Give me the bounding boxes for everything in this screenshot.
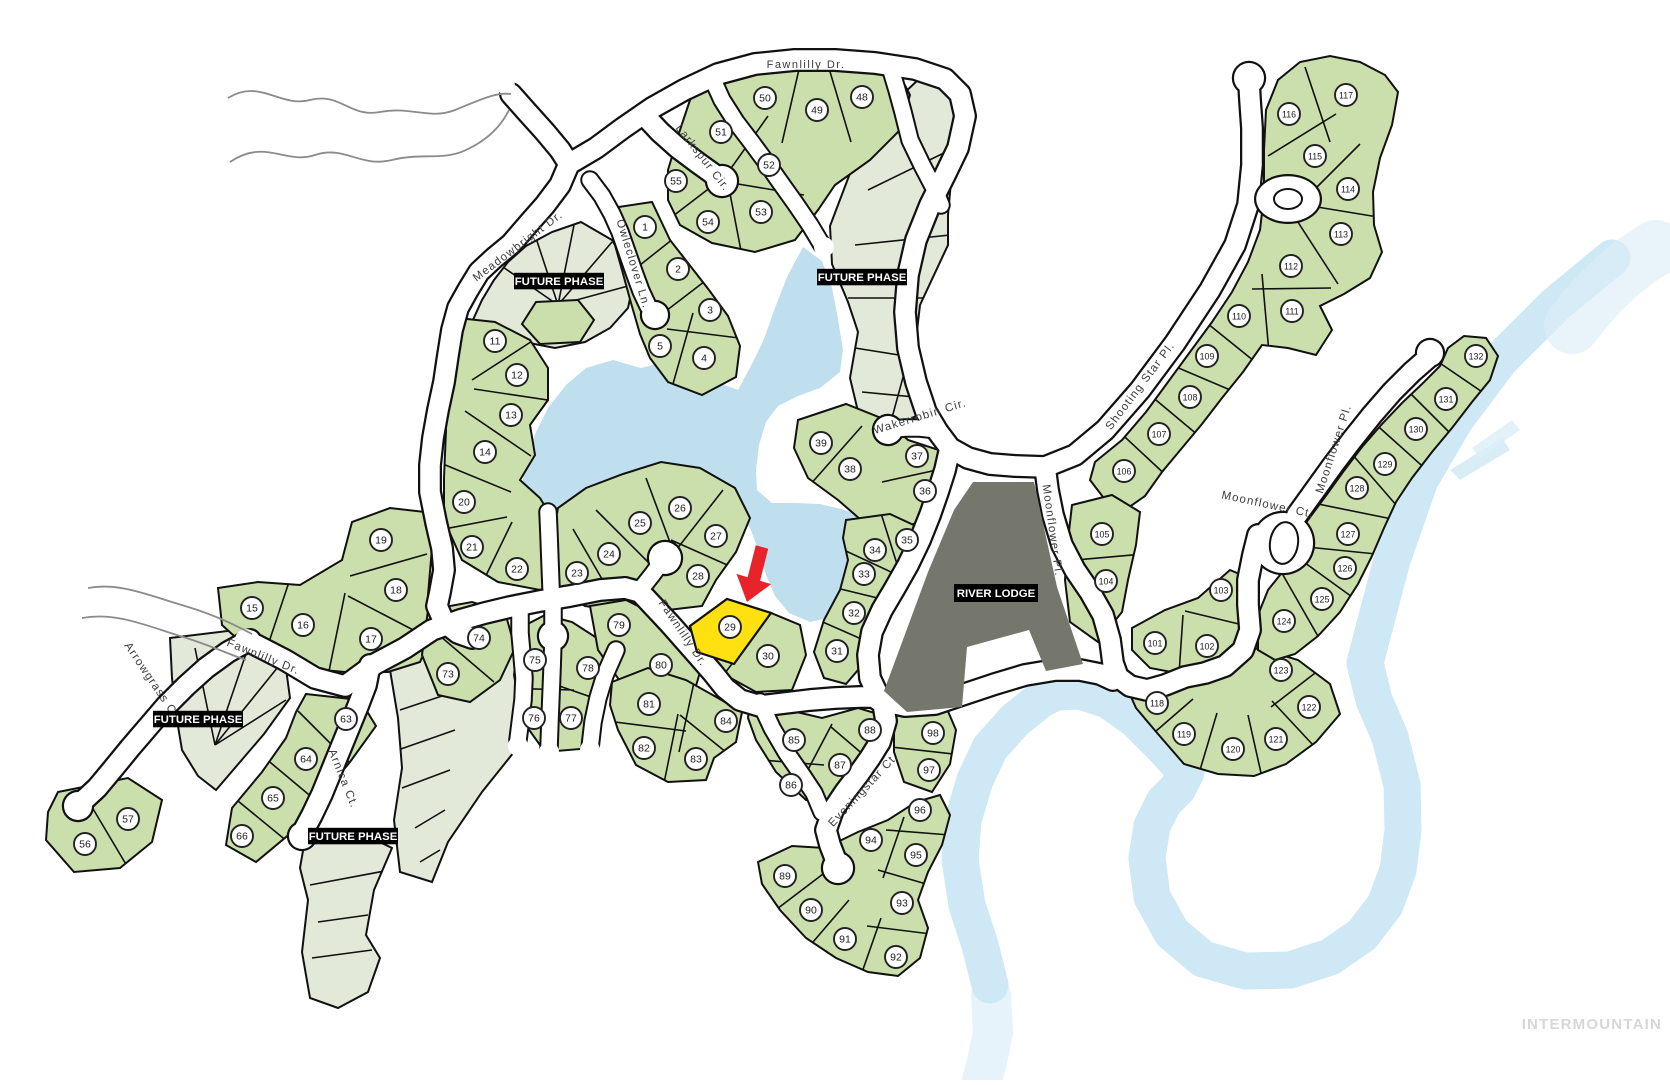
- svg-text:101: 101: [1148, 639, 1163, 649]
- svg-text:52: 52: [763, 160, 775, 172]
- svg-text:96: 96: [914, 805, 926, 817]
- svg-text:1: 1: [642, 222, 648, 234]
- svg-text:54: 54: [702, 217, 714, 229]
- svg-text:79: 79: [613, 620, 625, 632]
- svg-text:78: 78: [582, 663, 594, 675]
- svg-text:98: 98: [927, 728, 939, 740]
- svg-text:20: 20: [458, 497, 470, 509]
- svg-text:106: 106: [1117, 467, 1132, 477]
- svg-text:93: 93: [896, 898, 908, 910]
- svg-text:22: 22: [511, 564, 523, 576]
- svg-text:FUTURE PHASE: FUTURE PHASE: [515, 276, 604, 288]
- svg-text:38: 38: [844, 464, 856, 476]
- svg-text:25: 25: [634, 518, 646, 530]
- svg-text:24: 24: [603, 549, 615, 561]
- svg-text:39: 39: [815, 438, 827, 450]
- svg-text:125: 125: [1315, 595, 1330, 605]
- svg-text:26: 26: [674, 503, 686, 515]
- svg-text:57: 57: [122, 814, 134, 826]
- svg-text:86: 86: [785, 780, 797, 792]
- svg-text:90: 90: [805, 905, 817, 917]
- svg-text:121: 121: [1269, 735, 1284, 745]
- svg-text:75: 75: [529, 655, 541, 667]
- svg-text:128: 128: [1350, 484, 1365, 494]
- svg-text:19: 19: [375, 535, 387, 547]
- svg-text:27: 27: [710, 531, 722, 543]
- svg-text:14: 14: [479, 447, 491, 459]
- svg-text:111: 111: [1285, 307, 1298, 317]
- svg-text:30: 30: [762, 651, 774, 663]
- svg-text:85: 85: [788, 735, 800, 747]
- svg-text:56: 56: [79, 839, 91, 851]
- svg-text:82: 82: [638, 743, 650, 755]
- svg-text:84: 84: [720, 716, 732, 728]
- svg-text:118: 118: [1150, 699, 1164, 709]
- svg-text:87: 87: [834, 760, 846, 772]
- svg-text:77: 77: [565, 713, 577, 725]
- svg-text:92: 92: [890, 952, 902, 964]
- svg-text:108: 108: [1183, 393, 1198, 403]
- svg-text:31: 31: [831, 646, 843, 658]
- svg-text:33: 33: [858, 569, 870, 581]
- svg-text:32: 32: [848, 608, 860, 620]
- svg-text:23: 23: [571, 568, 583, 580]
- svg-text:119: 119: [1177, 730, 1191, 740]
- svg-text:66: 66: [236, 831, 248, 843]
- svg-text:48: 48: [856, 92, 868, 104]
- svg-text:12: 12: [511, 370, 523, 382]
- svg-text:124: 124: [1277, 617, 1292, 627]
- svg-text:35: 35: [901, 535, 913, 547]
- svg-text:107: 107: [1152, 430, 1167, 440]
- svg-text:RIVER LODGE: RIVER LODGE: [957, 588, 1036, 600]
- svg-text:FUTURE PHASE: FUTURE PHASE: [309, 831, 398, 843]
- svg-text:114: 114: [1341, 185, 1355, 195]
- svg-text:5: 5: [657, 341, 663, 353]
- svg-text:28: 28: [692, 571, 704, 583]
- svg-text:74: 74: [473, 633, 485, 645]
- svg-text:50: 50: [759, 93, 771, 105]
- svg-text:117: 117: [1339, 91, 1353, 101]
- svg-text:131: 131: [1439, 395, 1454, 405]
- svg-text:18: 18: [390, 585, 402, 597]
- svg-text:51: 51: [715, 127, 727, 139]
- svg-text:83: 83: [690, 754, 702, 766]
- svg-text:110: 110: [1232, 312, 1246, 322]
- svg-text:65: 65: [267, 793, 279, 805]
- svg-text:36: 36: [919, 486, 931, 498]
- svg-text:63: 63: [340, 714, 352, 726]
- svg-text:55: 55: [670, 176, 682, 188]
- svg-text:132: 132: [1469, 352, 1484, 362]
- svg-text:21: 21: [466, 542, 478, 554]
- svg-text:113: 113: [1334, 230, 1348, 240]
- svg-text:3: 3: [707, 305, 713, 317]
- svg-text:49: 49: [811, 105, 823, 117]
- svg-text:88: 88: [864, 725, 876, 737]
- svg-text:95: 95: [910, 850, 922, 862]
- svg-text:130: 130: [1409, 425, 1424, 435]
- svg-text:126: 126: [1338, 564, 1353, 574]
- svg-text:97: 97: [923, 765, 935, 777]
- svg-text:16: 16: [297, 620, 309, 632]
- svg-text:FUTURE PHASE: FUTURE PHASE: [818, 272, 907, 284]
- svg-text:64: 64: [300, 754, 312, 766]
- svg-text:17: 17: [365, 634, 377, 646]
- svg-text:129: 129: [1378, 460, 1393, 470]
- svg-text:115: 115: [1308, 152, 1322, 162]
- svg-text:15: 15: [246, 603, 258, 615]
- svg-text:FUTURE PHASE: FUTURE PHASE: [154, 714, 243, 726]
- svg-text:13: 13: [505, 410, 517, 422]
- svg-text:105: 105: [1095, 530, 1110, 540]
- svg-text:91: 91: [839, 934, 851, 946]
- svg-text:76: 76: [528, 713, 540, 725]
- svg-text:Fawnlilly Dr.: Fawnlilly Dr.: [767, 59, 846, 71]
- svg-text:53: 53: [755, 207, 767, 219]
- svg-text:127: 127: [1341, 530, 1356, 540]
- svg-text:120: 120: [1226, 745, 1241, 755]
- svg-text:109: 109: [1200, 352, 1215, 362]
- svg-text:4: 4: [701, 353, 707, 365]
- svg-text:29: 29: [724, 622, 736, 634]
- svg-text:37: 37: [911, 451, 923, 463]
- svg-text:2: 2: [675, 264, 681, 276]
- svg-text:89: 89: [779, 871, 791, 883]
- svg-text:104: 104: [1099, 577, 1114, 587]
- svg-text:116: 116: [1282, 110, 1296, 120]
- svg-text:80: 80: [655, 660, 667, 672]
- svg-text:103: 103: [1214, 586, 1229, 596]
- svg-text:123: 123: [1274, 666, 1289, 676]
- svg-text:81: 81: [643, 699, 655, 711]
- svg-text:11: 11: [490, 336, 501, 348]
- svg-text:102: 102: [1200, 642, 1215, 652]
- svg-text:122: 122: [1302, 703, 1317, 713]
- svg-text:73: 73: [442, 669, 454, 681]
- svg-text:34: 34: [869, 545, 881, 557]
- svg-text:112: 112: [1284, 262, 1298, 272]
- svg-text:94: 94: [865, 835, 877, 847]
- svg-text:INTERMOUNTAIN: INTERMOUNTAIN: [1522, 1016, 1662, 1033]
